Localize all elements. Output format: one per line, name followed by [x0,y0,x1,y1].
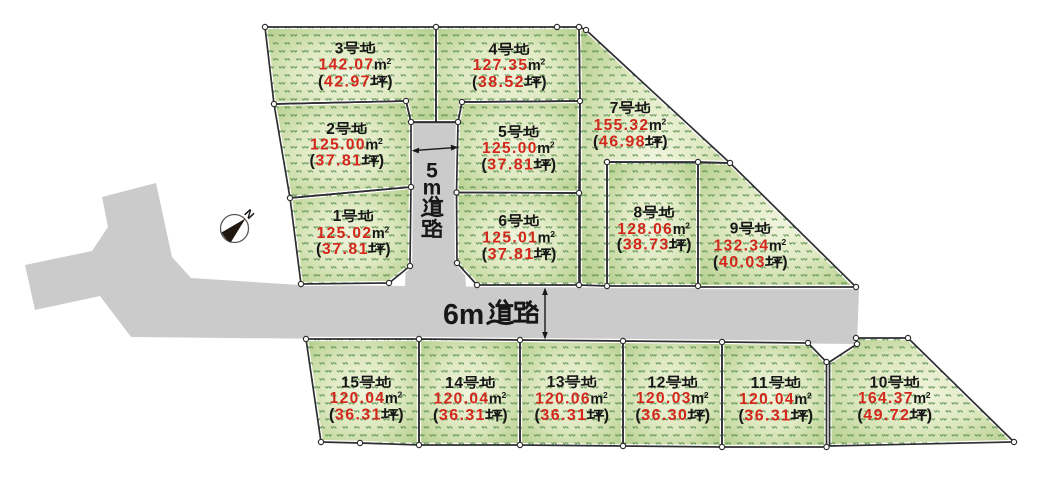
svg-text:40.03: 40.03 [719,254,766,271]
svg-text:127.35: 127.35 [473,57,529,74]
svg-text:): ) [387,73,392,90]
svg-text:46.98: 46.98 [599,134,646,151]
svg-text:8: 8 [634,205,643,222]
svg-text:): ) [385,241,390,258]
svg-text:2: 2 [603,390,608,400]
svg-text:m: m [538,230,551,246]
svg-text:125.02: 125.02 [317,225,373,242]
svg-text:37.81: 37.81 [315,153,362,170]
svg-text:120.03: 120.03 [636,390,692,407]
svg-text:6m: 6m [443,299,484,331]
svg-text:): ) [927,407,932,424]
svg-text:): ) [379,153,384,170]
svg-text:2: 2 [685,220,690,230]
svg-text:37.81: 37.81 [322,241,369,258]
svg-text:2: 2 [541,57,546,67]
svg-text:13: 13 [547,374,565,391]
svg-text:49.72: 49.72 [863,407,910,424]
svg-text:3: 3 [335,40,344,57]
svg-text:164.37: 164.37 [858,390,914,407]
svg-text:m: m [374,58,387,74]
svg-text:): ) [398,407,403,424]
svg-text:37.81: 37.81 [488,246,535,263]
svg-text:2: 2 [550,140,555,150]
svg-text:36.31: 36.31 [540,407,587,424]
svg-text:125.00: 125.00 [482,140,538,157]
svg-text:10: 10 [870,375,888,392]
svg-text:m: m [537,141,550,157]
svg-text:38.73: 38.73 [623,237,670,254]
svg-text:36.31: 36.31 [439,407,486,424]
svg-text:120.04: 120.04 [434,391,490,408]
svg-text:): ) [686,237,691,254]
svg-text:132.34: 132.34 [714,238,770,255]
svg-text:2: 2 [662,117,667,127]
svg-text:155.32: 155.32 [594,117,650,134]
svg-text:7: 7 [610,100,619,117]
svg-text:5: 5 [498,124,507,141]
svg-text:m: m [385,391,398,407]
svg-text:38.52: 38.52 [478,74,525,91]
svg-text:2: 2 [926,390,931,400]
svg-text:2: 2 [378,136,383,146]
svg-text:m: m [372,226,385,242]
svg-text:2: 2 [550,229,555,239]
svg-text:11: 11 [751,375,769,392]
svg-text:): ) [541,74,546,91]
svg-text:125.01: 125.01 [482,229,538,246]
svg-text:): ) [551,246,556,263]
svg-text:1: 1 [333,208,342,225]
svg-text:128.06: 128.06 [617,221,673,238]
svg-text:2: 2 [502,390,507,400]
svg-text:): ) [551,157,556,174]
svg-text:m: m [769,239,782,255]
svg-text:9: 9 [730,221,739,238]
svg-text:2: 2 [704,390,709,400]
svg-text:142.07: 142.07 [319,57,375,74]
svg-text:36.31: 36.31 [335,407,382,424]
svg-text:2: 2 [387,56,392,66]
svg-text:6: 6 [498,213,507,230]
svg-text:): ) [808,407,813,424]
svg-text:m: m [673,222,686,238]
svg-text:): ) [604,407,609,424]
svg-text:14: 14 [445,375,463,392]
svg-text:2: 2 [385,224,390,234]
svg-text:42.97: 42.97 [324,73,371,90]
svg-text:36.30: 36.30 [641,407,688,424]
svg-text:): ) [705,407,710,424]
svg-text:37.81: 37.81 [487,157,534,174]
svg-text:): ) [782,254,787,271]
svg-text:m: m [691,391,704,407]
svg-text:m: m [365,138,378,154]
svg-text:m: m [489,392,502,408]
svg-text:125.00: 125.00 [310,137,366,154]
svg-text:120.06: 120.06 [535,390,591,407]
svg-text:m: m [528,58,541,74]
svg-text:2: 2 [326,121,335,138]
svg-text:): ) [502,407,507,424]
svg-text:m: m [590,391,603,407]
svg-text:2: 2 [782,237,787,247]
svg-text:m: m [913,391,926,407]
svg-text:2: 2 [398,390,403,400]
svg-text:12: 12 [648,375,666,392]
svg-text:120.04: 120.04 [330,390,386,407]
svg-text:2: 2 [807,390,812,400]
svg-text:m: m [649,118,662,134]
svg-text:120.04: 120.04 [739,391,795,408]
svg-text:): ) [662,134,667,151]
svg-text:36.31: 36.31 [744,407,791,424]
svg-text:m: m [794,392,807,408]
